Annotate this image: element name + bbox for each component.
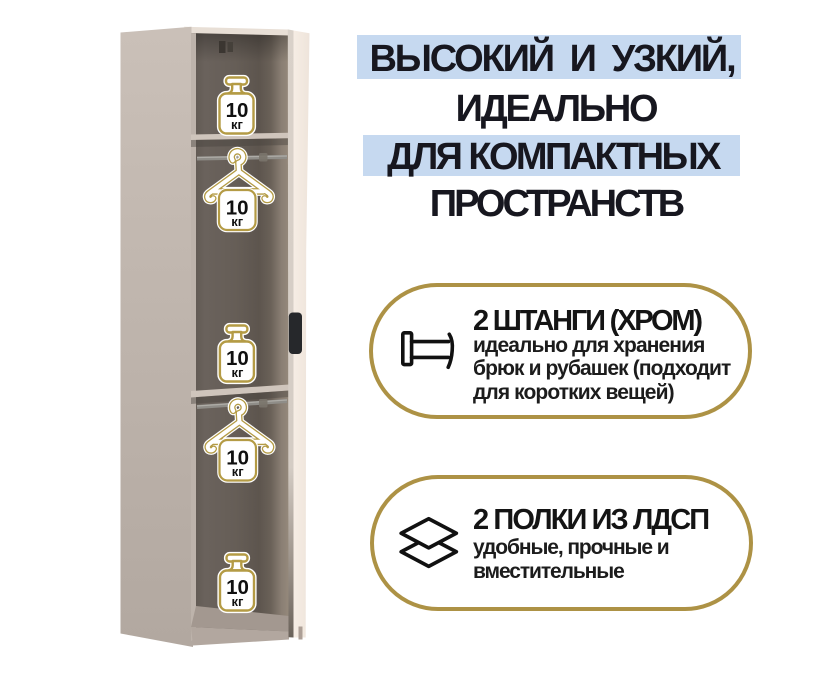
svg-text:кг: кг [231, 117, 244, 132]
svg-text:кг: кг [231, 365, 244, 380]
svg-text:кг: кг [232, 594, 245, 609]
svg-text:кг: кг [232, 464, 245, 479]
svg-text:кг: кг [231, 214, 244, 229]
